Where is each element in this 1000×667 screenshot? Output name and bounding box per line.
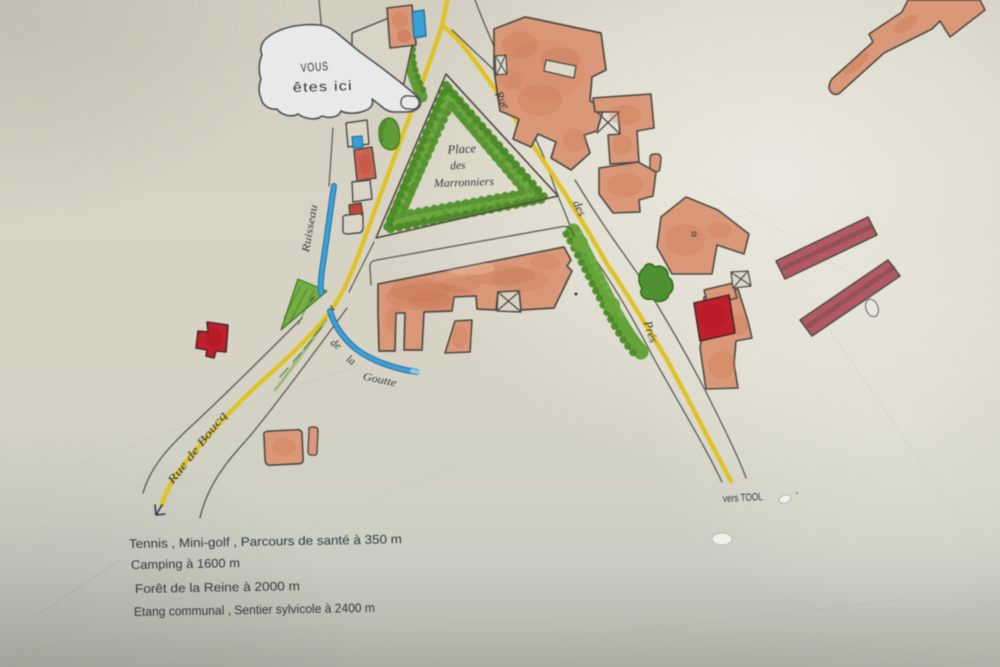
svg-text:des: des	[450, 160, 466, 173]
svg-text:vers TOOL: vers TOOL	[723, 491, 764, 505]
svg-text:Marronniers: Marronniers	[433, 176, 495, 190]
svg-text:Place: Place	[446, 141, 477, 157]
svg-text:êtes ici: êtes ici	[293, 78, 353, 95]
svg-text:Forêt de la Reine à 2000: Forêt de la Reine à 2000 m	[135, 579, 300, 596]
svg-text:Camping à 1600 m: Camping à 1600 m	[131, 556, 240, 572]
svg-text:VOUS: VOUS	[300, 59, 329, 75]
